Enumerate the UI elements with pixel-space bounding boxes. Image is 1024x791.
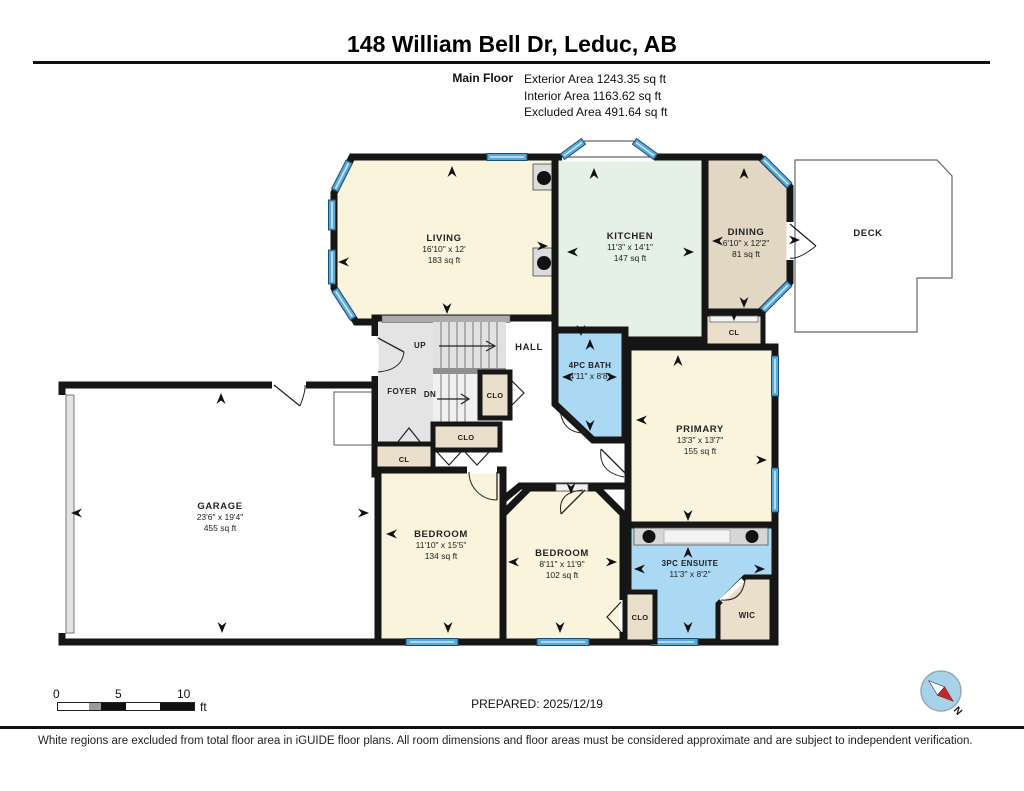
page-title: 148 William Bell Dr, Leduc, AB xyxy=(0,31,1024,58)
garage-area: 455 sq ft xyxy=(204,523,237,533)
kitchen-label: KITCHEN xyxy=(607,231,653,242)
up-label: UP xyxy=(414,341,426,350)
dining-dims: 6'10" x 12'2" xyxy=(723,238,770,248)
kitchen-dims: 11'3" x 14'1" xyxy=(607,242,653,252)
stair-rail xyxy=(382,316,510,323)
living-label: LIVING xyxy=(426,233,461,244)
kitchen-area: 147 sq ft xyxy=(614,253,647,263)
dn-label: DN xyxy=(424,390,436,399)
wic-label: WIC xyxy=(739,611,756,620)
bedroom1-dims: 11'10" x 15'5" xyxy=(416,540,467,550)
dining-area: 81 sq ft xyxy=(732,249,761,259)
garage-stoop xyxy=(334,392,378,445)
garage: GARAGE 23'6" x 19'4" 455 sq ft xyxy=(59,382,379,643)
closet-ensuite: CLO xyxy=(625,592,655,642)
bedroom2-area: 102 sq ft xyxy=(546,570,579,580)
dining-label: DINING xyxy=(728,227,765,238)
compass: N xyxy=(912,664,974,726)
area-summary: Exterior Area 1243.35 sq ft Interior Are… xyxy=(524,71,667,121)
ensuite-dims: 11'3" x 8'2" xyxy=(669,569,710,579)
sink xyxy=(746,530,759,543)
bedroom2-dims: 8'11" x 11'9" xyxy=(539,559,584,569)
sink xyxy=(643,530,656,543)
clo-hall-label: CLO xyxy=(487,391,504,400)
title-divider xyxy=(33,61,990,64)
living-area: 183 sq ft xyxy=(428,255,461,265)
floor-plan-page: 148 William Bell Dr, Leduc, AB Main Floo… xyxy=(0,0,1024,791)
deck-label: DECK xyxy=(853,228,882,239)
primary-label: PRIMARY xyxy=(676,424,724,435)
exterior-area: Exterior Area 1243.35 sq ft xyxy=(524,71,667,88)
bedroom-1: BEDROOM 11'10" x 15'5" 134 sq ft xyxy=(378,467,503,646)
bath-label: 4PC BATH xyxy=(569,361,612,370)
cl-primary-label: CL xyxy=(729,328,740,337)
foyer-label: FOYER xyxy=(387,387,417,396)
bottom-divider xyxy=(0,726,1024,729)
front-door-gap xyxy=(372,336,379,376)
bedroom1-area: 134 sq ft xyxy=(425,551,458,561)
disclaimer-text: White regions are excluded from total fl… xyxy=(38,735,973,747)
floor-plan-drawing: DECK GARAGE 23'6" x 19'4" 455 sq ft xyxy=(0,135,1024,665)
bedroom1-door-gap xyxy=(467,467,497,474)
bedroom1-label: BEDROOM xyxy=(414,529,468,540)
ensuite-label: 3PC ENSUITE xyxy=(662,559,719,568)
clo-stairs-label: CLO xyxy=(458,433,475,442)
deck: DECK xyxy=(795,160,952,332)
garage-label: GARAGE xyxy=(197,501,242,512)
hall-label: HALL xyxy=(515,342,543,353)
garage-door xyxy=(66,395,74,633)
prepared-date: PREPARED: 2025/12/19 xyxy=(50,697,1024,711)
primary-area: 155 sq ft xyxy=(684,446,717,456)
stairs-up xyxy=(433,322,506,368)
living-room: LIVING 16'10" x 12' 183 sq ft xyxy=(329,154,557,323)
kitchen: KITCHEN 11'3" x 14'1" 147 sq ft xyxy=(555,139,705,340)
excluded-area: Excluded Area 491.64 sq ft xyxy=(524,104,667,121)
garage-dims: 23'6" x 19'4" xyxy=(197,512,244,522)
cl-foyer-label: CL xyxy=(399,455,410,464)
living-dims: 16'10" x 12' xyxy=(422,244,466,254)
clo-ensuite-label: CLO xyxy=(632,613,649,622)
bath-dims: 4'11" x 8'8" xyxy=(569,371,610,381)
interior-area: Interior Area 1163.62 sq ft xyxy=(524,88,667,105)
garage-door-opening xyxy=(59,395,66,633)
bedroom2-label: BEDROOM xyxy=(535,548,589,559)
primary-dims: 13'3" x 13'7" xyxy=(677,435,724,445)
floor-label: Main Floor xyxy=(345,71,513,85)
